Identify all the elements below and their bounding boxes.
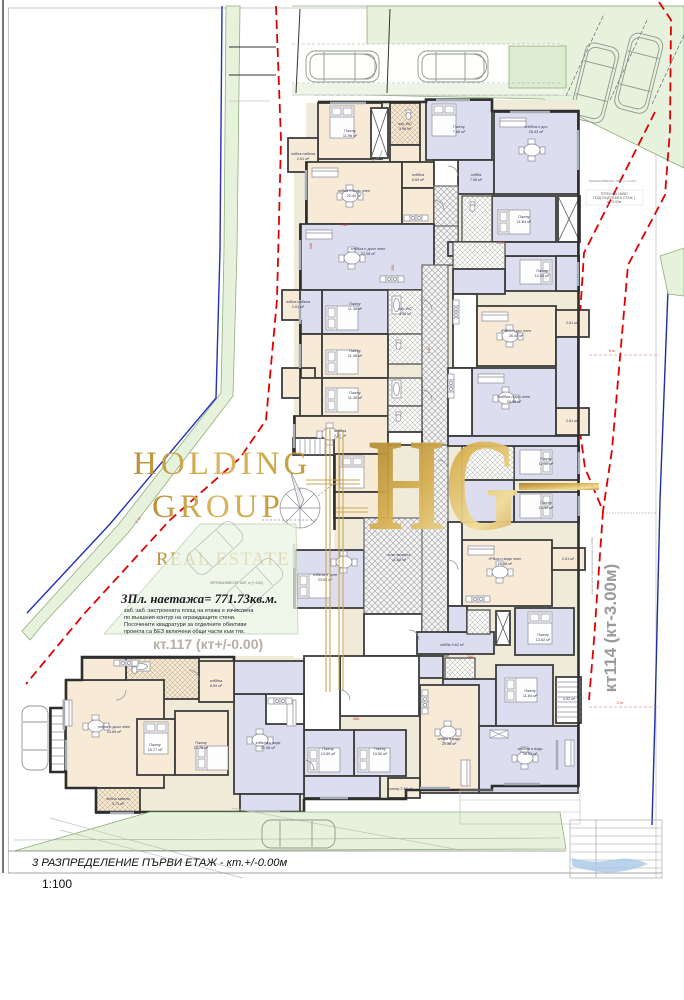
svg-text:GROUP: GROUP xyxy=(152,489,284,525)
svg-text:12.75 м²: 12.75 м² xyxy=(194,746,209,750)
svg-text:элббла н доч: элббла н доч xyxy=(524,125,547,129)
svg-text:элу. WC: элу. WC xyxy=(398,307,412,311)
svg-text:98.62 м²: 98.62 м² xyxy=(523,752,538,756)
svg-text:заб.:заб.:застроената площ на: заб.:заб.:застроената площ на етажа е из… xyxy=(124,608,254,614)
svg-text:элбела н доте: элбела н доте xyxy=(313,573,338,577)
svg-text:346: 346 xyxy=(467,654,474,659)
svg-text:8.59 м²: 8.59 м² xyxy=(210,684,223,688)
svg-text:элбла пабела: элбла пабела xyxy=(286,300,311,304)
svg-text:11.64 м²: 11.64 м² xyxy=(523,694,538,698)
svg-text:Пжелу: Пжелу xyxy=(322,747,333,751)
svg-text:10.50 м²: 10.50 м² xyxy=(373,752,388,756)
svg-text:Пжелу: Пжелу xyxy=(540,457,551,461)
svg-text:зона на вило подпорцелен етаж: зона на вило подпорцелен етаж он 3.00м xyxy=(590,537,594,594)
svg-text:Пжелу: Пжелу xyxy=(149,743,160,747)
svg-text:кт114 (кт-3.00м): кт114 (кт-3.00м) xyxy=(601,564,620,692)
svg-text:11.64 м²: 11.64 м² xyxy=(517,220,532,224)
svg-text:26.48 м²: 26.48 м² xyxy=(498,562,513,566)
svg-text:3.96 м²: 3.96 м² xyxy=(399,127,412,131)
svg-text:3 m: 3 m xyxy=(617,700,624,705)
svg-text:1:100: 1:100 xyxy=(42,877,72,891)
svg-text:7.06 м²: 7.06 м² xyxy=(470,178,483,182)
svg-text:гРВла н доч элен: гРВла н доч элен xyxy=(501,329,532,333)
svg-text:элееву 2.66 м²: элееву 2.66 м² xyxy=(387,787,413,791)
svg-text:Пжелу: Пжелу xyxy=(524,689,535,693)
svg-text:13.62 м²: 13.62 м² xyxy=(536,638,551,642)
svg-text:26.43 м²: 26.43 м² xyxy=(529,130,544,134)
svg-text:элббла: элббла xyxy=(210,679,223,683)
svg-text:10.77 м²: 10.77 м² xyxy=(148,748,163,752)
svg-text:26.46 м²: 26.46 м² xyxy=(507,400,522,404)
svg-text:2.61 м²: 2.61 м² xyxy=(566,419,579,423)
svg-text:Пжелу: Пжелу xyxy=(349,349,360,353)
svg-text:2.77 м²: 2.77 м² xyxy=(334,434,347,438)
svg-text:Пжелу: Пжелу xyxy=(536,269,547,273)
svg-text:3 РАЗПРЕДЕЛЕНИЕ ПЪРВИ ЕТАЖ - к: 3 РАЗПРЕДЕЛЕНИЕ ПЪРВИ ЕТАЖ - кт.+/-0.00м xyxy=(32,857,287,869)
svg-text:4.36 м²: 4.36 м² xyxy=(399,312,412,316)
svg-text:12.50 м²: 12.50 м² xyxy=(539,462,554,466)
svg-text:от -3.00м: от -3.00м xyxy=(607,200,622,204)
svg-text:22.08 м²: 22.08 м² xyxy=(361,252,376,256)
svg-text:11.36 м²: 11.36 м² xyxy=(348,396,363,400)
svg-text:элббла: элббла xyxy=(412,173,425,177)
svg-text:12.50 м²: 12.50 м² xyxy=(539,506,554,510)
svg-text:21.96 м²: 21.96 м² xyxy=(261,746,276,750)
svg-text:элббла н водо: элббла н водо xyxy=(517,747,542,751)
svg-text:11.36 м²: 11.36 м² xyxy=(348,307,363,311)
svg-text:Пжелу: Пжелу xyxy=(518,215,529,219)
svg-text:7.66 м²: 7.66 м² xyxy=(453,130,466,134)
svg-text:элббла: элббла xyxy=(334,429,347,433)
svg-text:по външния контур на ограждащи: по външния контур на ограждащите стени. xyxy=(124,615,236,621)
svg-text:ЗПл. наетажа= 771.73кв.м.: ЗПл. наетажа= 771.73кв.м. xyxy=(120,592,277,606)
svg-text:10.50 м²: 10.50 м² xyxy=(321,752,336,756)
svg-text:2.61 м²: 2.61 м² xyxy=(297,157,310,161)
svg-text:элбела н воде: элбела н воде xyxy=(255,741,280,745)
svg-text:2.61 м²: 2.61 м² xyxy=(566,321,579,325)
svg-text:226: 226 xyxy=(497,240,504,245)
svg-text:2.61 м²: 2.61 м² xyxy=(562,557,575,561)
svg-text:23.96 м²: 23.96 м² xyxy=(318,578,333,582)
svg-text:элбла пабела: элбла пабела xyxy=(291,152,316,156)
svg-text:140: 140 xyxy=(426,346,431,353)
svg-text:кт.117 (кт+/-0.00): кт.117 (кт+/-0.00) xyxy=(153,636,263,652)
svg-text:21.36 м²: 21.36 м² xyxy=(442,742,457,746)
svg-text:346: 346 xyxy=(308,242,313,249)
svg-text:366: 366 xyxy=(353,716,360,721)
svg-text:проекта са БЕЗ включени общи ч: проекта са БЕЗ включени общи части към т… xyxy=(124,629,246,635)
svg-text:ТЕРЕНАНИВЕОЕТ АЮТ от (-3.00): ТЕРЕНАНИВЕОЕТ АЮТ от (-3.00) xyxy=(588,179,636,183)
svg-text:2.61 м²: 2.61 м² xyxy=(292,305,305,309)
svg-text:Пжелу: Пжелу xyxy=(537,633,548,637)
svg-text:200: 200 xyxy=(390,264,395,271)
svg-text:11.68 м²: 11.68 м² xyxy=(392,558,407,562)
svg-text:Пжелу: Пжелу xyxy=(453,125,464,129)
svg-text:HOLDING: HOLDING xyxy=(133,446,311,482)
svg-text:элу. WC: элу. WC xyxy=(398,122,412,126)
svg-text:Посочените квадратури за отдел: Посочените квадратури за отделните обект… xyxy=(124,622,246,628)
svg-text:Пжелу: Пжелу xyxy=(374,747,385,751)
svg-text:ПЕРЕМАНИВЕОЕТ АЮТ от (+-0.00): ПЕРЕМАНИВЕОЕТ АЮТ от (+-0.00) xyxy=(210,581,263,585)
svg-text:элббла н доч элен: элббла н доч элен xyxy=(498,395,530,399)
svg-text:Пжелу: Пжелу xyxy=(195,741,206,745)
svg-text:Пжелу: Пжелу xyxy=(349,391,360,395)
svg-text:элбба: элбба xyxy=(471,173,482,177)
svg-text:26.48 м²: 26.48 м² xyxy=(509,334,524,338)
svg-text:5 m: 5 m xyxy=(609,348,616,353)
svg-text:элббла н доол элен: элббла н доол элен xyxy=(351,247,386,251)
svg-text:6.69 м²: 6.69 м² xyxy=(412,178,425,182)
svg-text:4.52 м²: 4.52 м² xyxy=(563,697,576,701)
svg-text:элбба 9.62 м²: элбба 9.62 м² xyxy=(440,643,465,647)
svg-text:12.50 м²: 12.50 м² xyxy=(535,274,550,278)
svg-text:элбла н водо элен: элбла н водо элен xyxy=(338,189,370,193)
svg-text:24.89 м²: 24.89 м² xyxy=(107,730,122,734)
svg-text:элбла н води: элбла н води xyxy=(438,737,461,741)
svg-text:3.71 м²: 3.71 м² xyxy=(112,802,125,806)
svg-text:Пжелу: Пжелу xyxy=(349,302,360,306)
svg-text:элбла завена: элбла завена xyxy=(106,797,130,801)
svg-text:746: 746 xyxy=(341,222,348,227)
svg-text:11.36 м²: 11.36 м² xyxy=(348,354,363,358)
svg-text:Пжелу: Пжелу xyxy=(344,129,355,133)
svg-text:11.96 м²: 11.96 м² xyxy=(343,134,358,138)
svg-text:Пжелу: Пжелу xyxy=(540,501,551,505)
svg-text:HG: HG xyxy=(368,411,520,558)
svg-text:элбла н доол элен: элбла н доол элен xyxy=(98,725,131,729)
svg-text:22.40 м²: 22.40 м² xyxy=(347,194,362,198)
